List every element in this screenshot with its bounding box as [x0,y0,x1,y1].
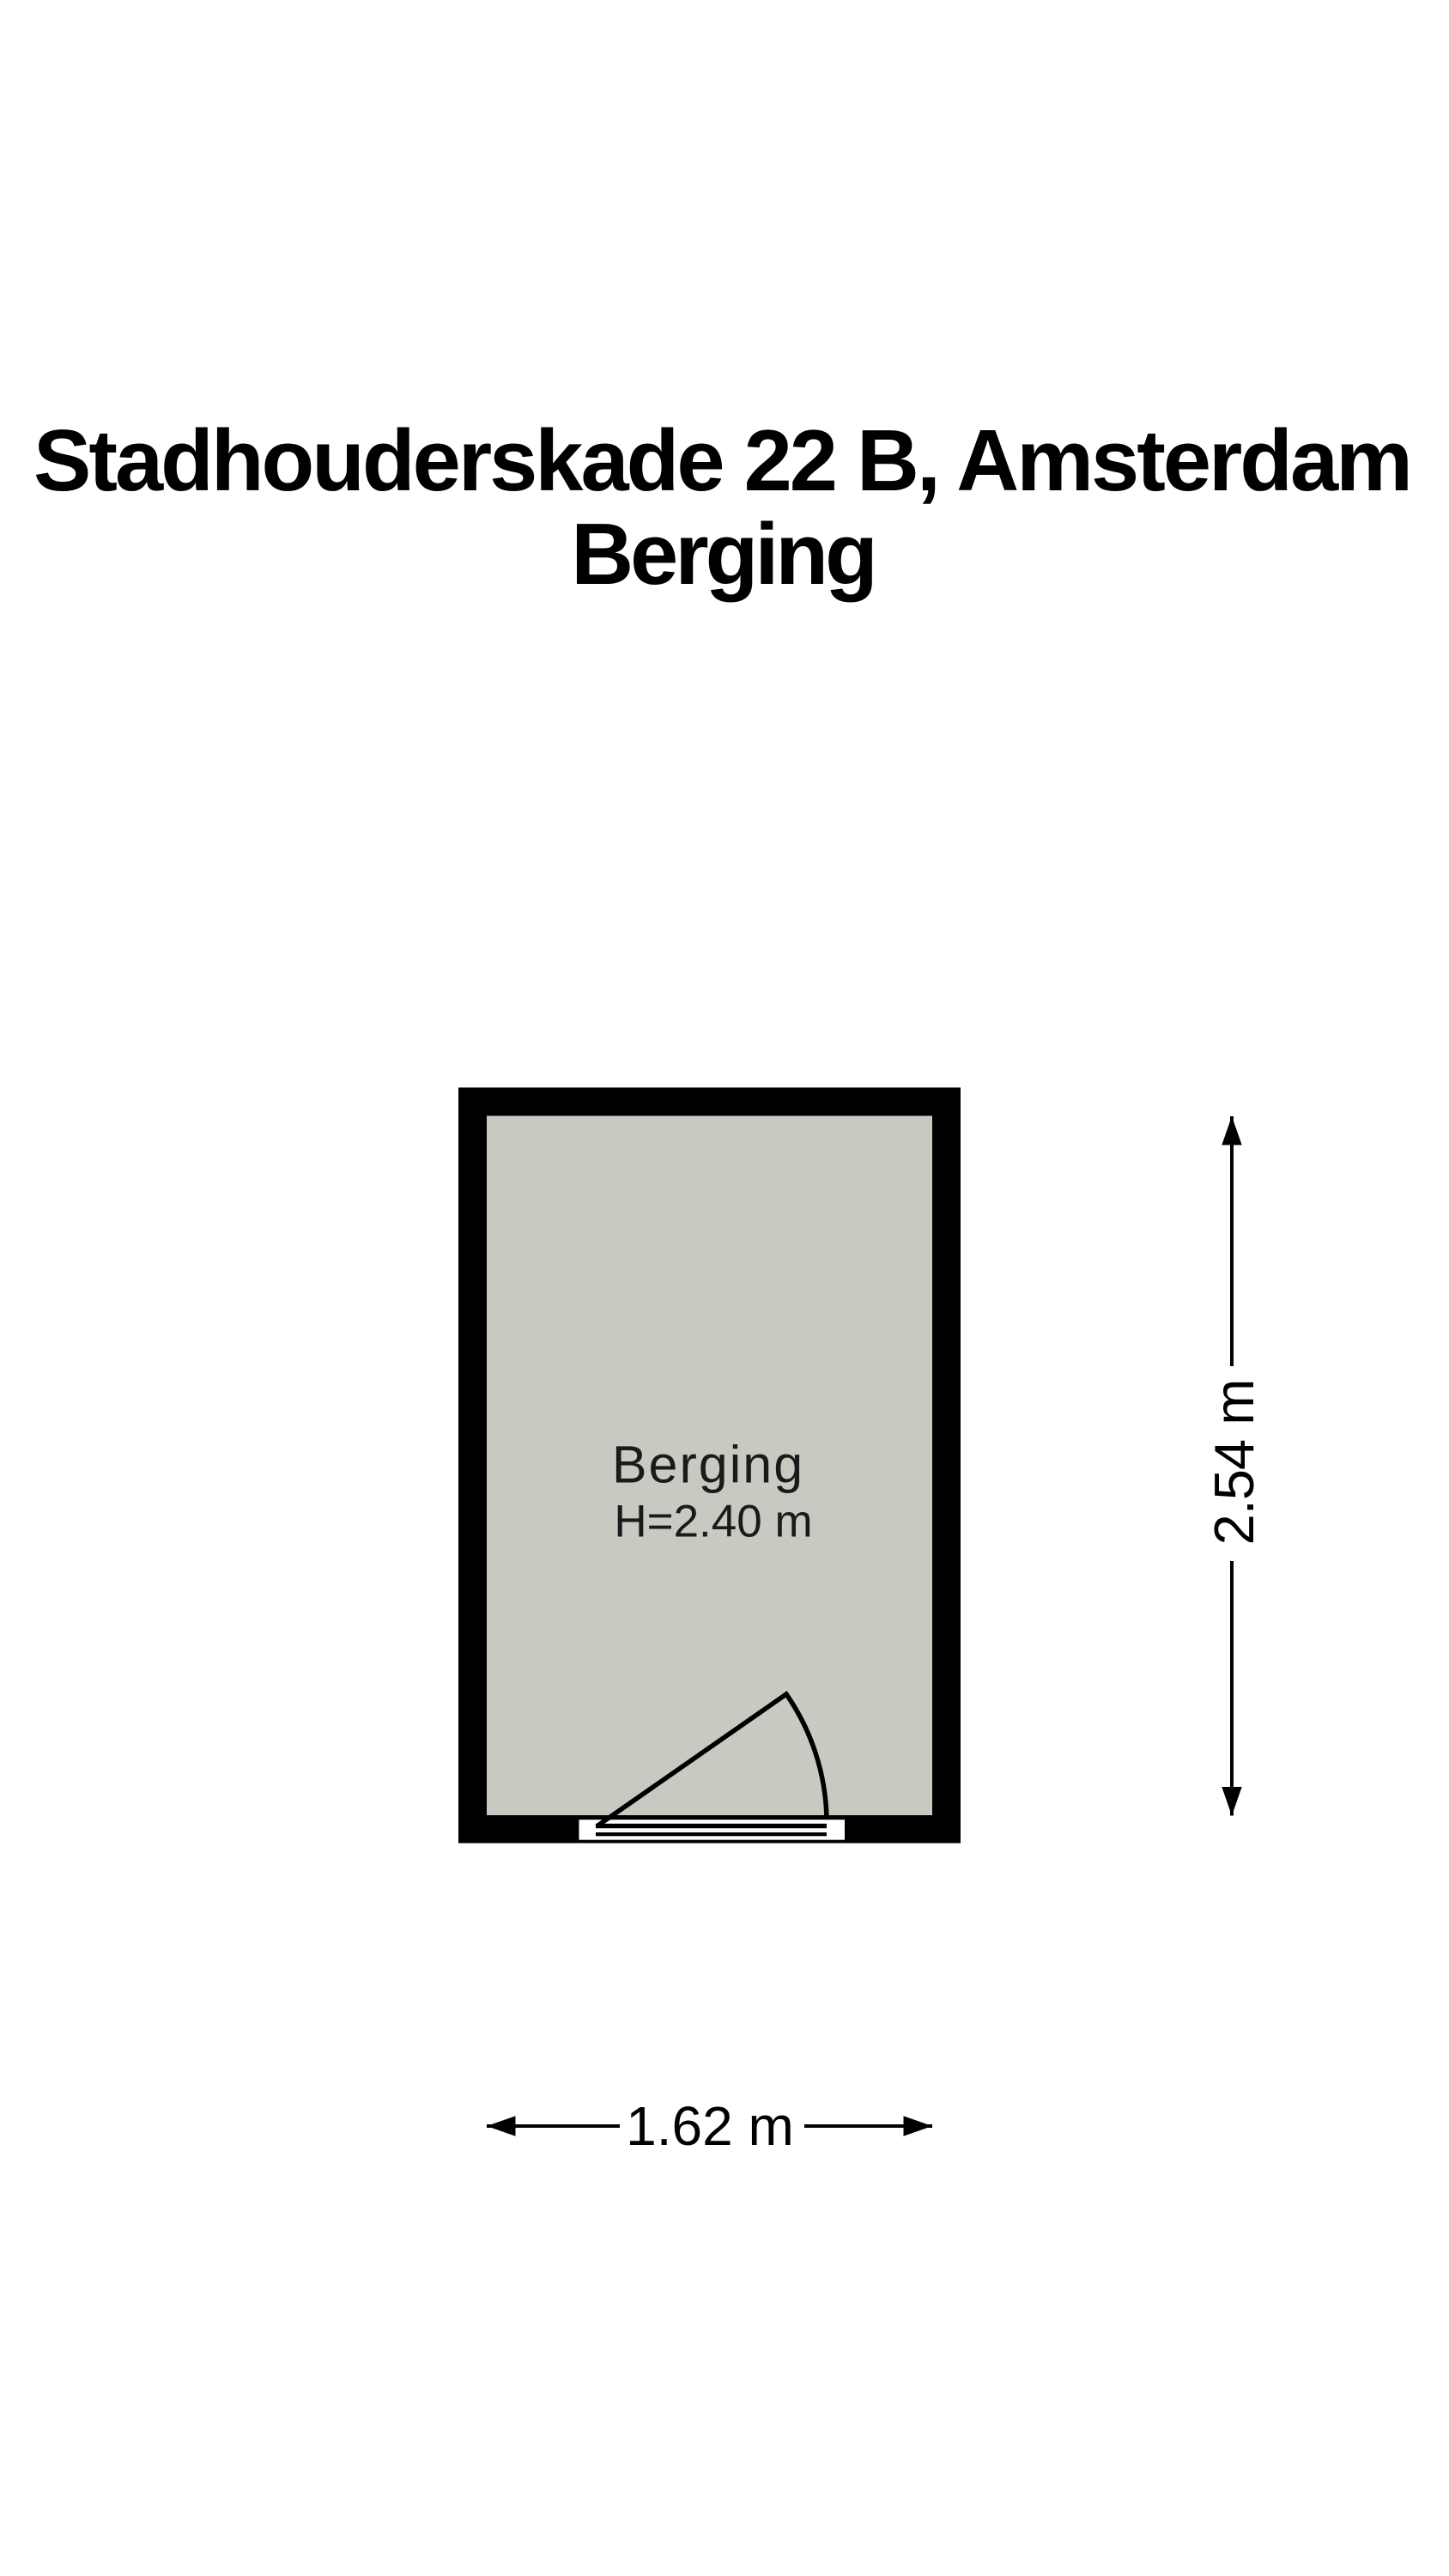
svg-text:1.62 m: 1.62 m [626,2095,794,2157]
svg-text:H=2.40 m: H=2.40 m [614,1497,812,1547]
svg-text:Berging: Berging [612,1435,804,1493]
svg-text:Berging: Berging [571,507,875,603]
svg-text:Stadhouderskade 22 B, Amsterda: Stadhouderskade 22 B, Amsterdam [33,413,1410,509]
svg-text:2.54 m: 2.54 m [1203,1380,1265,1546]
